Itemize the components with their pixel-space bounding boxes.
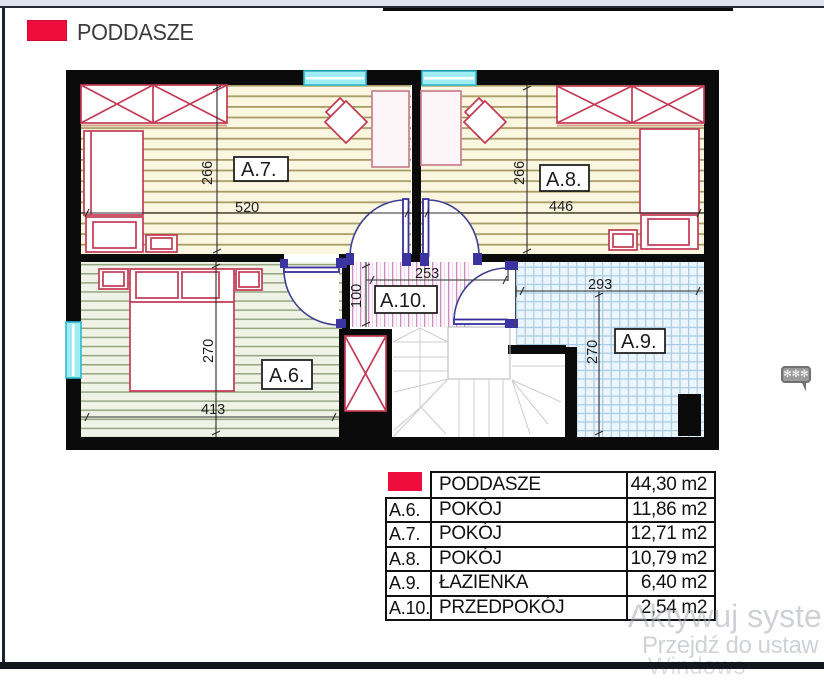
svg-text:270: 270	[201, 339, 217, 363]
svg-text:A.6.: A.6.	[269, 365, 305, 387]
svg-text:520: 520	[235, 200, 259, 216]
svg-text:266: 266	[512, 161, 528, 185]
svg-text:413: 413	[201, 402, 225, 418]
svg-text:A.7.: A.7.	[241, 159, 277, 181]
svg-text:A.10.: A.10.	[380, 290, 427, 312]
svg-text:270: 270	[585, 340, 601, 364]
svg-text:A.8.: A.8.	[546, 169, 582, 191]
svg-text:266: 266	[200, 161, 216, 185]
svg-text:293: 293	[588, 277, 612, 293]
svg-text:A.9.: A.9.	[621, 331, 657, 353]
svg-text:100: 100	[349, 284, 365, 308]
svg-text:253: 253	[415, 266, 439, 282]
svg-text:446: 446	[549, 199, 573, 215]
